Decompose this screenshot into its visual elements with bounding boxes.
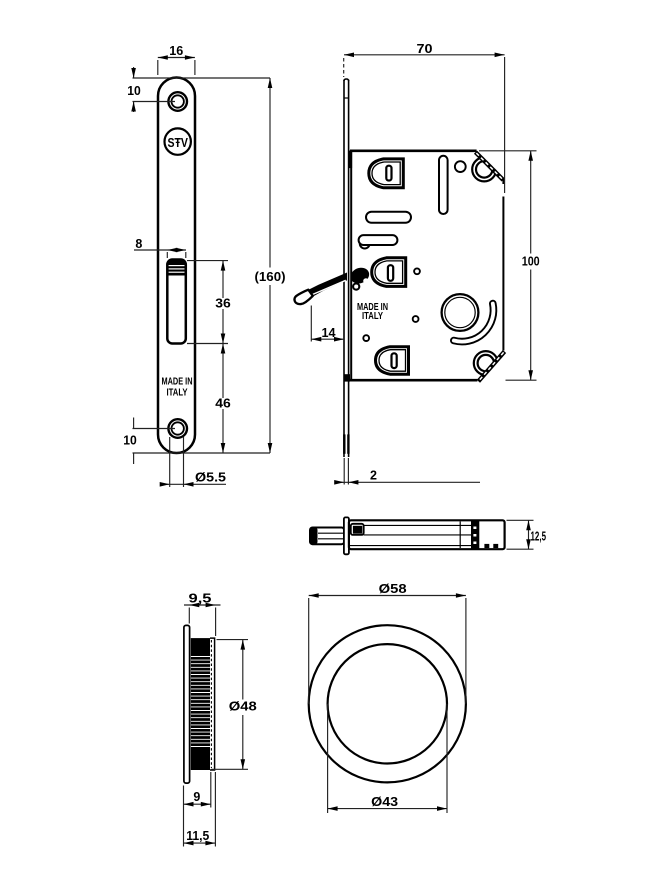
svg-text:10: 10 bbox=[123, 434, 137, 448]
svg-text:Ø58: Ø58 bbox=[379, 582, 407, 596]
svg-text:100: 100 bbox=[522, 255, 540, 269]
svg-text:46: 46 bbox=[215, 397, 231, 411]
svg-text:MADE IN: MADE IN bbox=[162, 377, 193, 388]
svg-text:8: 8 bbox=[135, 237, 142, 251]
svg-text:10: 10 bbox=[127, 84, 141, 98]
svg-text:2: 2 bbox=[370, 469, 377, 483]
svg-text:14: 14 bbox=[322, 326, 336, 340]
svg-text:ITALY: ITALY bbox=[167, 387, 188, 398]
svg-text:Ø5.5: Ø5.5 bbox=[195, 471, 226, 485]
svg-text:(160): (160) bbox=[255, 270, 286, 284]
svg-text:SŦV: SŦV bbox=[167, 136, 188, 150]
svg-text:36: 36 bbox=[215, 297, 231, 311]
svg-text:9: 9 bbox=[193, 790, 200, 804]
svg-text:11,5: 11,5 bbox=[186, 829, 209, 843]
svg-text:ITALY: ITALY bbox=[362, 311, 383, 322]
svg-text:Ø48: Ø48 bbox=[229, 699, 257, 713]
svg-text:Ø43: Ø43 bbox=[371, 795, 398, 809]
svg-text:12,5: 12,5 bbox=[531, 530, 547, 544]
svg-text:16: 16 bbox=[169, 44, 183, 58]
svg-text:9,5: 9,5 bbox=[189, 591, 212, 605]
svg-text:70: 70 bbox=[417, 42, 433, 56]
